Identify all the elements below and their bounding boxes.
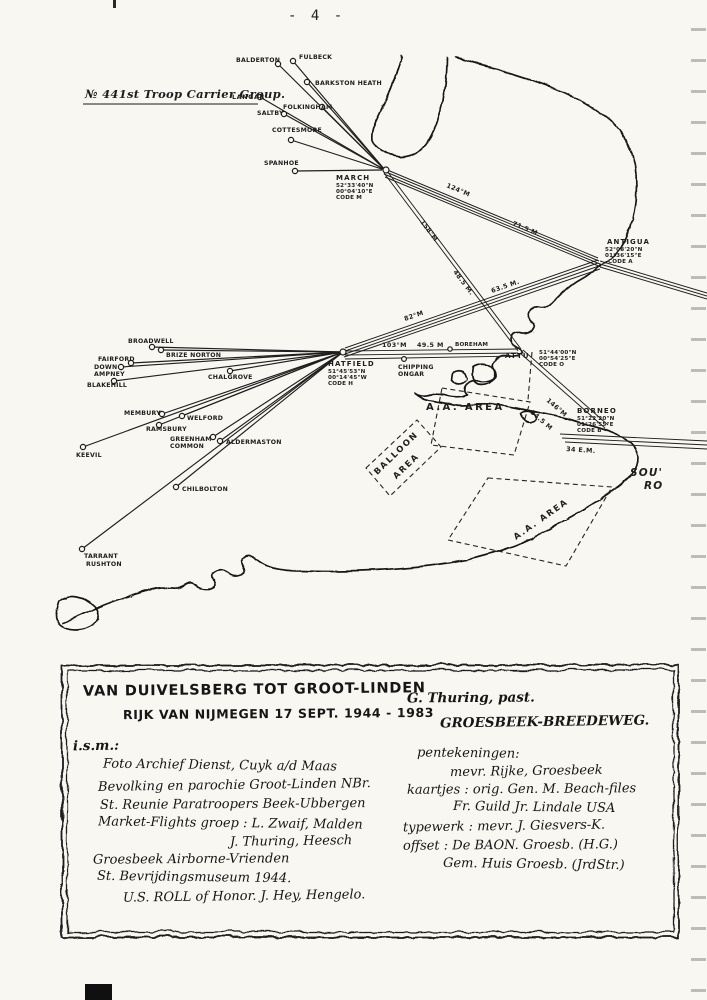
checkpoint-code-antigua: CODE A <box>608 259 633 265</box>
airfield-label-blakehill: BLAKEHILL <box>87 382 127 389</box>
airfield-label-broadwell: BROADWELL <box>128 338 174 345</box>
route-hatfield-antigua <box>345 263 598 351</box>
route-hatfield-antigua <box>345 260 598 348</box>
airfield-label-greenham-2: COMMON <box>170 443 204 450</box>
credits-right-line: offset : De BAON. Groesb. (H.G.) <box>403 837 618 854</box>
credits-left-line: St. Reunie Paratroopers Beek-Ubbergen <box>100 796 366 813</box>
airfield-label-tarrant-1: TARRANT <box>84 553 119 560</box>
route-hatfield-attu <box>345 349 518 351</box>
credits-right-line: typewerk : mevr. J. Giesvers-K. <box>403 818 605 836</box>
airfield-marker-chilbolton <box>173 484 178 489</box>
scan-artifact-tick <box>113 0 116 8</box>
credits-left-line: Market-Flights groep : L. Zwaif, Malden <box>98 814 363 832</box>
airfield-marker-welford <box>179 413 184 418</box>
credits-right-line: mevr. Rijke, Groesbeek <box>450 763 603 780</box>
credits-right-line: pentekeningen: <box>417 745 520 761</box>
airfield-label-ramsbury: RAMSBURY <box>146 426 187 433</box>
airfield-label-balderton: BALDERTON <box>236 57 280 64</box>
route-heading-hatfield-antigua: 82°M <box>403 309 425 323</box>
airfield-marker-broadwell <box>149 344 154 349</box>
airfield-label-chilbolton: CHILBOLTON <box>182 486 228 493</box>
credits-right-line: kaartjes : orig. Gen. M. Beach-files <box>407 781 636 798</box>
route-march-attu <box>384 173 518 351</box>
airfield-marker-keevil <box>80 444 85 449</box>
airfield-marker-chipping-ongar <box>402 357 407 362</box>
airfield-label-spanhoe: SPANHOE <box>264 160 299 167</box>
airfield-label-fulbeck: FULBECK <box>299 54 332 61</box>
airfield-label-fairford: FAIRFORD <box>98 356 135 363</box>
airfield-label-greenham-1: GREENHAM <box>170 436 212 443</box>
airfield-marker-boreham <box>448 347 452 351</box>
credits-box: VAN DUIVELSBERG TOT GROOT-LINDEN RIJK VA… <box>55 658 683 942</box>
route-line <box>295 170 382 171</box>
airfield-marker-fulbeck <box>290 58 295 63</box>
route-line <box>162 352 343 414</box>
airfield-marker-cottesmore <box>288 137 293 142</box>
airfield-label-membury: MEMBURY <box>124 410 161 417</box>
airfield-label-cottesmore: COTTESMORE <box>272 127 322 134</box>
perforation-marks <box>691 0 706 1000</box>
coastline-lincolnshire-wash <box>371 55 446 156</box>
scanned-page: - 4 - A.A. AREA A.A. AREA BALLOON <box>0 0 707 1000</box>
credits-author-line2: GROESBEEK-BREEDEWEG. <box>440 713 649 732</box>
airfield-marker-brize-norton <box>158 347 163 352</box>
route-borneo-east <box>560 434 707 441</box>
airfield-label-keevil: KEEVIL <box>76 452 102 459</box>
checkpoint-code-borneo: CODE B <box>577 428 602 434</box>
route-march-antigua <box>384 174 600 264</box>
margin-note-line1: SOU' <box>630 467 663 479</box>
airfield-marker-tarrant-rushton <box>79 546 84 551</box>
credits-left-line: Groesbeek Airborne-Vrienden <box>93 851 289 867</box>
checkpoint-name-march: MARCH <box>336 174 370 182</box>
credits-left-line: J. Thuring, Heesch <box>230 833 352 850</box>
checkpoint-code-attu: CODE O <box>539 362 564 368</box>
route-distance-hatfield-attu: 49.5 M <box>417 341 444 349</box>
defense-areas: A.A. AREA A.A. AREA BALLOON AREA <box>366 352 612 566</box>
airfield-label-tarrant-2: RUSHTON <box>86 561 122 568</box>
credits-ism-label: i.s.m.: <box>73 738 119 755</box>
checkpoint-name-attu: ATTU <box>505 352 530 360</box>
flight-route-map: A.A. AREA A.A. AREA BALLOON AREA <box>0 0 707 660</box>
airfield-marker-spanhoe <box>292 168 297 173</box>
estuary-island-2 <box>451 370 466 383</box>
airfield-marker-chalgrove <box>227 368 232 373</box>
airfield-label-langar: LANGAR <box>232 93 265 101</box>
route-borneo-east <box>562 438 707 445</box>
airfield-label-chalgrove: CHALGROVE <box>208 374 253 381</box>
route-march-antigua <box>386 172 599 261</box>
airfield-label-barkston-heath: BARKSTON HEATH <box>315 80 382 87</box>
aa-area-north-label: A.A. AREA <box>426 402 505 413</box>
credits-title-line2: RIJK VAN NIJMEGEN 17 SEPT. 1944 - 1983 <box>123 705 434 722</box>
aa-area-north-boundary <box>431 388 530 455</box>
airfield-label-chipping-2: ONGAR <box>398 371 424 378</box>
credits-left-line: Foto Archief Dienst, Cuyk a/d Maas <box>103 757 337 775</box>
route-hatfield-attu <box>345 353 518 355</box>
checkpoint-name-antigua: ANTIGUA <box>607 238 650 246</box>
checkpoint-code-march: CODE M <box>336 195 362 201</box>
checkpoint-marker-march <box>383 167 389 173</box>
route-march-antigua <box>385 177 601 267</box>
credits-author-line1: G. Thuring, past. <box>407 690 535 707</box>
route-line <box>213 352 343 437</box>
airfield-label-welford: WELFORD <box>187 415 223 422</box>
island-blob <box>55 596 97 629</box>
checkpoint-name-hatfield: HATFIELD <box>328 360 375 368</box>
credits-right-line: Gem. Huis Groesb. (JrdStr.) <box>443 856 625 873</box>
airfield-label-boreham: BOREHAM <box>455 342 488 348</box>
airfield-label-down-ampney-2: AMPNEY <box>94 371 125 378</box>
map-labels: № 441st Troop Carrier Group. LANGAR BALD… <box>76 54 663 568</box>
airfield-label-aldermaston: ALDERMASTON <box>226 439 282 446</box>
credits-left-line: St. Bevrijdingsmuseum 1944. <box>97 869 292 886</box>
airfield-marker-aldermaston <box>217 438 222 443</box>
main-routes <box>344 169 707 449</box>
route-heading-hatfield-attu: 103°M <box>382 341 407 349</box>
scan-artifact-bar <box>85 984 112 1000</box>
checkpoint-code-hatfield: CODE H <box>328 381 353 387</box>
balloon-area-boundary <box>366 420 441 496</box>
airfield-label-brize-norton: BRIZE NORTON <box>166 352 221 359</box>
airfield-label-saltby: SALTBY <box>257 110 284 117</box>
airfield-label-chipping-1: CHIPPING <box>398 364 434 371</box>
route-distance-borneo-east: 34 E.M. <box>566 445 596 455</box>
credits-right-line: Fr. Guild Jr. Lindale USA <box>453 799 616 816</box>
checkpoint-marker-hatfield <box>340 349 346 355</box>
route-march-antigua <box>385 169 598 258</box>
route-heading-march-attu: 158°M <box>418 218 439 243</box>
margin-note-line2: RO <box>644 480 663 492</box>
checkpoint-name-borneo: BORNEO <box>577 407 617 415</box>
airfield-label-folkingham: FOLKINGHAM <box>283 104 332 111</box>
airfield-marker-barkston-heath <box>304 79 309 84</box>
airfield-marker-down-ampney <box>118 364 123 369</box>
airfield-label-down-ampney-1: DOWN <box>94 364 117 371</box>
